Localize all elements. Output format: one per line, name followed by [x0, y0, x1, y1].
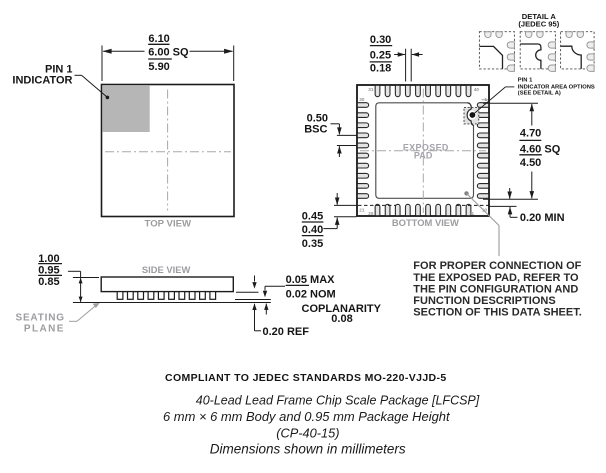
- svg-text:0.25: 0.25: [370, 49, 391, 61]
- svg-text:6.10: 6.10: [148, 33, 169, 45]
- svg-text:11: 11: [469, 211, 474, 216]
- svg-text:(SEE DETAIL A): (SEE DETAIL A): [518, 91, 561, 97]
- svg-text:THE EXPOSED PAD, REFER TO: THE EXPOSED PAD, REFER TO: [413, 272, 579, 284]
- svg-text:PAD: PAD: [414, 151, 433, 161]
- svg-text:PIN 1: PIN 1: [518, 77, 533, 83]
- svg-text:SEATING: SEATING: [15, 313, 64, 324]
- svg-text:INDICATOR: INDICATOR: [12, 74, 72, 86]
- svg-text:FOR PROPER CONNECTION OF: FOR PROPER CONNECTION OF: [413, 260, 581, 272]
- svg-text:0.30: 0.30: [370, 34, 391, 46]
- svg-text:0.35: 0.35: [302, 238, 323, 250]
- svg-text:6.00 SQ: 6.00 SQ: [148, 46, 189, 58]
- svg-text:BOTTOM VIEW: BOTTOM VIEW: [392, 217, 459, 228]
- svg-text:4.50: 4.50: [520, 157, 541, 169]
- svg-text:Dimensions shown in millimeter: Dimensions shown in millimeters: [210, 441, 406, 456]
- svg-text:THE PIN CONFIGURATION AND: THE PIN CONFIGURATION AND: [413, 283, 578, 295]
- svg-text:(CP-40-15): (CP-40-15): [276, 426, 339, 441]
- svg-text:0.20 MIN: 0.20 MIN: [520, 212, 565, 224]
- svg-text:SECTION OF THIS DATA SHEET.: SECTION OF THIS DATA SHEET.: [413, 307, 581, 319]
- svg-text:4.70: 4.70: [520, 128, 541, 140]
- svg-text:SIDE VIEW: SIDE VIEW: [142, 264, 191, 275]
- svg-text:0.20 REF: 0.20 REF: [263, 326, 310, 338]
- svg-text:(JEDEC 95): (JEDEC 95): [518, 19, 559, 28]
- svg-text:21: 21: [359, 208, 365, 213]
- svg-text:31: 31: [368, 87, 374, 92]
- svg-text:40-Lead Lead Frame Chip Scale: 40-Lead Lead Frame Chip Scale Package [L…: [196, 394, 480, 408]
- svg-text:40: 40: [474, 87, 480, 92]
- svg-text:0.85: 0.85: [38, 276, 59, 288]
- svg-text:PLANE: PLANE: [24, 324, 65, 335]
- svg-text:FUNCTION DESCRIPTIONS: FUNCTION DESCRIPTIONS: [413, 295, 555, 307]
- svg-text:BSC: BSC: [304, 124, 327, 136]
- svg-text:0.45: 0.45: [302, 211, 323, 223]
- svg-text:TOP VIEW: TOP VIEW: [145, 218, 193, 229]
- svg-text:0.05 MAX: 0.05 MAX: [286, 274, 336, 286]
- svg-text:0.95: 0.95: [38, 265, 59, 277]
- svg-text:30: 30: [359, 97, 365, 102]
- svg-text:COMPLIANT TO JEDEC STANDARDS M: COMPLIANT TO JEDEC STANDARDS MO-220-VJJD…: [165, 372, 447, 384]
- svg-text:0.08: 0.08: [331, 313, 352, 325]
- svg-text:0.40: 0.40: [302, 224, 323, 236]
- svg-text:4.60 SQ: 4.60 SQ: [520, 143, 561, 155]
- svg-text:6 mm × 6 mm Body and 0.95 mm P: 6 mm × 6 mm Body and 0.95 mm Package Hei…: [163, 409, 451, 424]
- svg-text:0.18: 0.18: [370, 63, 391, 75]
- svg-text:5.90: 5.90: [148, 61, 169, 73]
- svg-text:0.02 NOM: 0.02 NOM: [286, 288, 336, 300]
- svg-text:20: 20: [368, 211, 374, 216]
